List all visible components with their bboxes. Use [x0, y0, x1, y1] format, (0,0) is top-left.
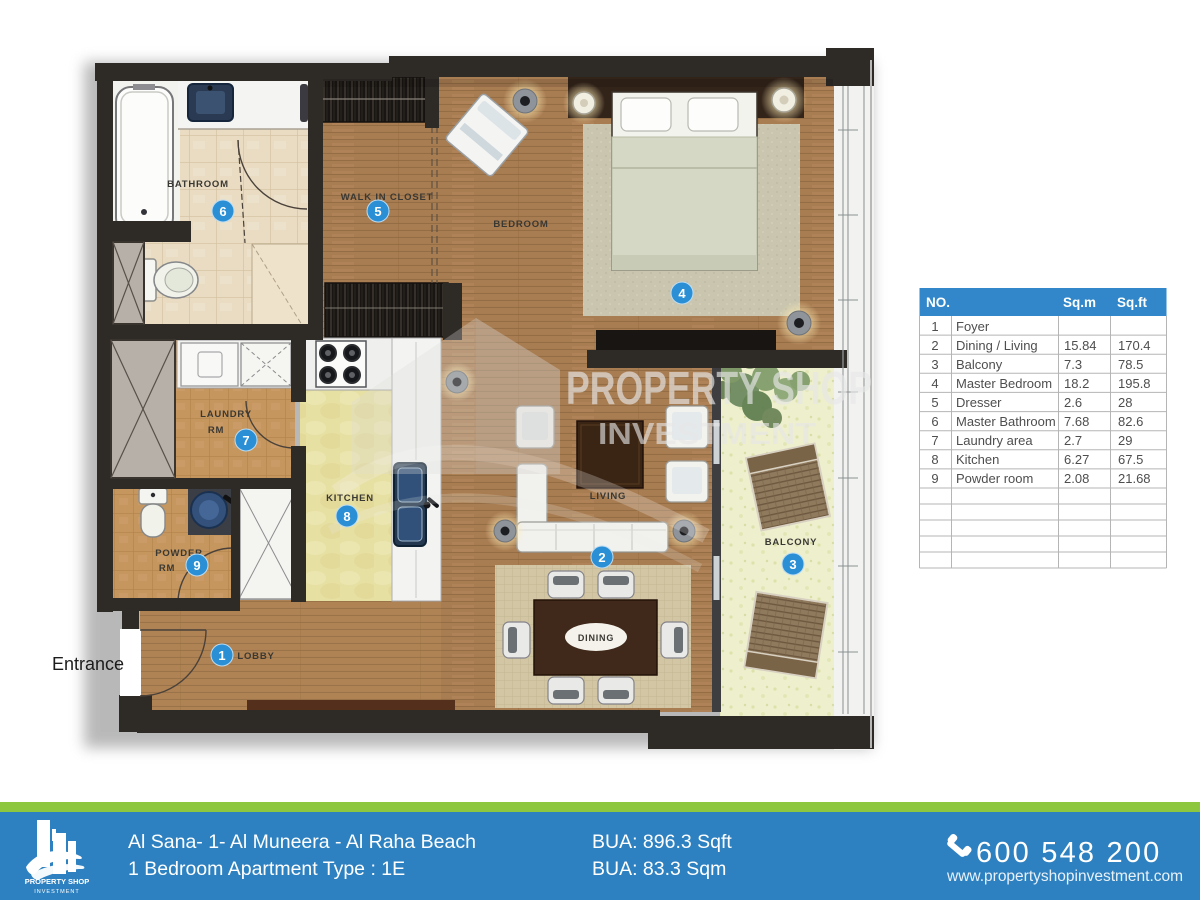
svg-text:DINING: DINING: [578, 633, 614, 643]
svg-text:5: 5: [374, 204, 381, 219]
svg-text:3: 3: [789, 557, 796, 572]
svg-text:6: 6: [931, 414, 938, 429]
svg-text:Kitchen: Kitchen: [956, 452, 999, 467]
svg-text:1: 1: [218, 648, 225, 663]
svg-text:LAUNDRY: LAUNDRY: [200, 409, 252, 420]
svg-text:15.84: 15.84: [1064, 338, 1097, 353]
svg-text:RM: RM: [159, 563, 175, 574]
svg-text:Sq.m: Sq.m: [1063, 295, 1096, 310]
svg-text:INVESTMENT: INVESTMENT: [34, 889, 79, 895]
svg-text:9: 9: [931, 471, 938, 486]
svg-text:Master Bedroom: Master Bedroom: [956, 376, 1052, 391]
svg-text:600 548 200: 600 548 200: [976, 837, 1161, 869]
svg-text:Entrance: Entrance: [52, 654, 124, 674]
svg-text:18.2: 18.2: [1064, 376, 1089, 391]
svg-text:Master Bathroom: Master Bathroom: [956, 414, 1056, 429]
svg-text:7: 7: [931, 433, 938, 448]
svg-text:BUA: 83.3 Sqm: BUA: 83.3 Sqm: [592, 858, 726, 880]
svg-text:Al Sana- 1- Al Muneera - Al Ra: Al Sana- 1- Al Muneera - Al Raha Beach: [128, 831, 476, 853]
svg-text:195.8: 195.8: [1118, 376, 1151, 391]
svg-text:4: 4: [931, 376, 938, 391]
svg-text:1 Bedroom Apartment Type : 1E: 1 Bedroom Apartment Type : 1E: [128, 858, 405, 880]
svg-text:28: 28: [1118, 395, 1132, 410]
svg-text:3: 3: [931, 357, 938, 372]
svg-text:Foyer: Foyer: [956, 319, 990, 334]
svg-text:6: 6: [219, 204, 226, 219]
svg-text:170.4: 170.4: [1118, 338, 1151, 353]
svg-text:7.68: 7.68: [1064, 414, 1089, 429]
svg-text:7: 7: [242, 433, 249, 448]
svg-text:WALK IN CLOSET: WALK IN CLOSET: [341, 192, 433, 203]
svg-text:5: 5: [931, 395, 938, 410]
svg-text:KITCHEN: KITCHEN: [326, 493, 374, 504]
svg-text:Dining / Living: Dining / Living: [956, 338, 1038, 353]
svg-text:82.6: 82.6: [1118, 414, 1143, 429]
svg-text:2: 2: [598, 550, 605, 565]
svg-text:78.5: 78.5: [1118, 357, 1143, 372]
svg-text:LIVING: LIVING: [590, 491, 626, 502]
svg-text:8: 8: [931, 452, 938, 467]
svg-text:BALCONY: BALCONY: [765, 537, 818, 548]
svg-text:2.7: 2.7: [1064, 433, 1082, 448]
svg-text:RM: RM: [208, 425, 224, 436]
svg-text:21.68: 21.68: [1118, 471, 1151, 486]
svg-text:Laundry area: Laundry area: [956, 433, 1033, 448]
svg-text:Powder room: Powder room: [956, 471, 1033, 486]
svg-text:BUA: 896.3 Sqft: BUA: 896.3 Sqft: [592, 831, 732, 853]
svg-text:PROPERTY SHOP: PROPERTY SHOP: [566, 362, 872, 414]
svg-text:2.6: 2.6: [1064, 395, 1082, 410]
svg-text:4: 4: [678, 286, 686, 301]
svg-text:2: 2: [931, 338, 938, 353]
svg-text:BEDROOM: BEDROOM: [493, 219, 548, 230]
svg-text:PROPERTY SHOP: PROPERTY SHOP: [25, 877, 89, 886]
svg-text:INVESTMENT: INVESTMENT: [598, 416, 816, 451]
svg-text:LOBBY: LOBBY: [237, 651, 274, 662]
svg-text:2.08: 2.08: [1064, 471, 1089, 486]
svg-text:www.propertyshopinvestment.com: www.propertyshopinvestment.com: [946, 868, 1183, 885]
svg-text:8: 8: [343, 509, 350, 524]
svg-text:9: 9: [193, 558, 200, 573]
svg-text:67.5: 67.5: [1118, 452, 1143, 467]
svg-text:1: 1: [931, 319, 938, 334]
svg-text:BATHROOM: BATHROOM: [167, 179, 229, 190]
svg-text:29: 29: [1118, 433, 1132, 448]
svg-text:7.3: 7.3: [1064, 357, 1082, 372]
svg-text:6.27: 6.27: [1064, 452, 1089, 467]
svg-text:Balcony: Balcony: [956, 357, 1003, 372]
svg-text:Dresser: Dresser: [956, 395, 1002, 410]
svg-text:Sq.ft: Sq.ft: [1117, 295, 1147, 310]
svg-text:NO.: NO.: [926, 295, 950, 310]
